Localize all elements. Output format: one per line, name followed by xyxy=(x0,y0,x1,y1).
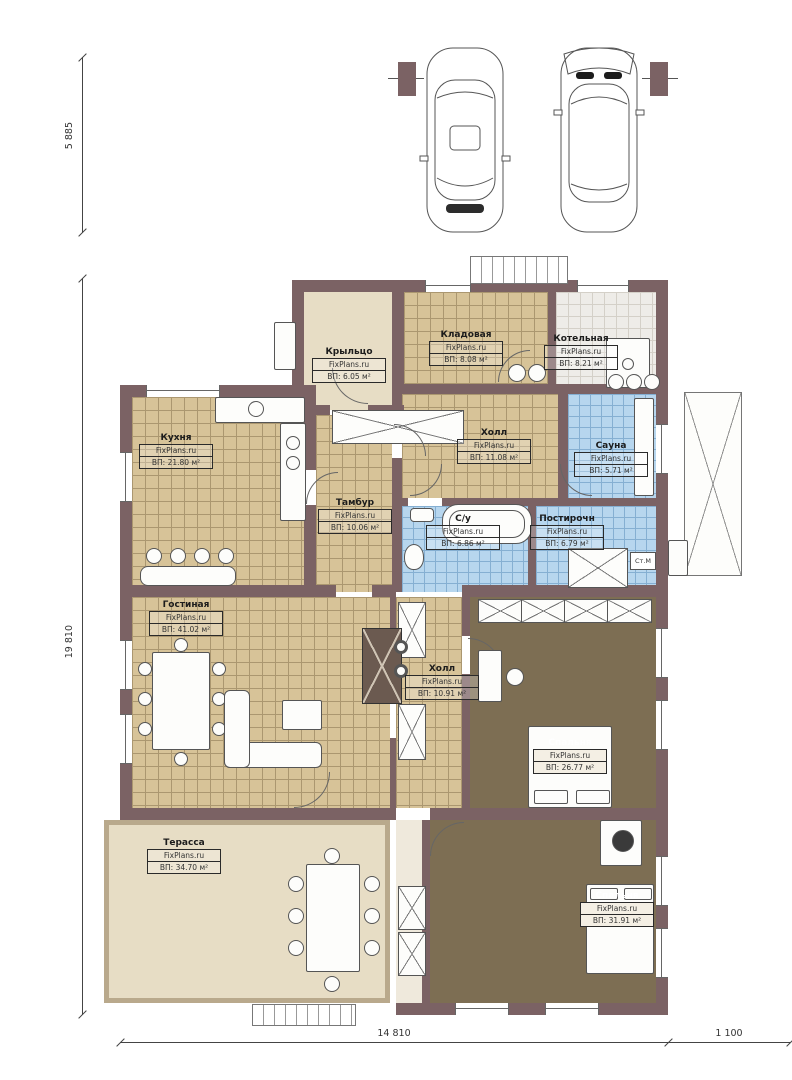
pillow xyxy=(576,790,610,804)
room-area: ВП: 21.80 м² xyxy=(140,457,212,468)
window xyxy=(146,385,220,397)
room-area: ВП: 31.91 м² xyxy=(581,915,653,926)
room-label-hall-mid: Холл FixPlans.ru ВП: 10.91 м² xyxy=(405,664,479,700)
boiler-equipment xyxy=(644,374,660,390)
room-area: ВП: 8.08 м² xyxy=(430,354,502,365)
wall xyxy=(392,458,402,592)
dining-table xyxy=(152,652,210,750)
window xyxy=(120,640,132,690)
dimension-line-main-width xyxy=(120,1042,668,1043)
room-area: ВП: 6.79 м² xyxy=(531,538,603,549)
wall xyxy=(430,808,668,820)
watermark: FixPlans.ru xyxy=(458,440,530,452)
window xyxy=(120,714,132,764)
watermark: FixPlans.ru xyxy=(581,903,653,915)
room-info-box: FixPlans.ru ВП: 6.05 м² xyxy=(312,358,386,383)
room-area: ВП: 10.06 м² xyxy=(319,522,391,533)
room-label-boiler: Котельная FixPlans.ru ВП: 8.21 м² xyxy=(544,334,618,370)
dimension-line-garage-height xyxy=(82,57,83,233)
chair xyxy=(170,548,186,564)
sofa xyxy=(224,690,250,768)
watermark: FixPlans.ru xyxy=(575,453,647,465)
watermark: FixPlans.ru xyxy=(430,342,502,354)
coffee-table xyxy=(282,700,322,730)
chair xyxy=(138,692,152,706)
room-label-bathroom: С/у FixPlans.ru ВП: 6.86 м² xyxy=(426,514,500,550)
stove-burner xyxy=(286,456,300,470)
room-name: Холл xyxy=(405,664,479,674)
window xyxy=(455,1003,509,1015)
chair xyxy=(288,876,304,892)
room-name: Кладовая xyxy=(429,330,503,340)
room-label-terrace: Терасса FixPlans.ru ВП: 34.70 м² xyxy=(147,838,221,874)
room-name: Крыльцо xyxy=(312,347,386,357)
chair xyxy=(138,722,152,736)
room-label-sauna: Сауна FixPlans.ru ВП: 5.71 м² xyxy=(574,441,648,477)
dimension-line-right-width xyxy=(668,1042,790,1043)
exterior-annex xyxy=(684,392,742,576)
chair xyxy=(288,908,304,924)
room-label-bedroom-1: Спальня FixPlans.ru ВП: 26.77 м² xyxy=(533,738,607,774)
room-info-box: FixPlans.ru ВП: 8.08 м² xyxy=(429,341,503,366)
washing-machine-label: Ст.М xyxy=(630,552,656,570)
wall xyxy=(120,808,396,820)
room-label-kitchen: Кухня FixPlans.ru ВП: 21.80 м² xyxy=(139,433,213,469)
room-name: Тамбур xyxy=(318,498,392,508)
window xyxy=(577,280,629,292)
wall xyxy=(120,585,336,597)
pillow xyxy=(534,790,568,804)
room-label-laundry: Постирочн FixPlans.ru ВП: 6.79 м² xyxy=(530,514,604,550)
room-info-box: FixPlans.ru ВП: 11.08 м² xyxy=(457,439,531,464)
watermark: FixPlans.ru xyxy=(545,346,617,358)
wardrobe-cell xyxy=(521,599,566,623)
room-name: Спальня xyxy=(533,738,607,748)
chair xyxy=(288,940,304,956)
room-name: Гостиная xyxy=(149,600,223,610)
kitchen-table xyxy=(140,566,236,586)
room-name: Спальня xyxy=(580,891,654,901)
wall xyxy=(528,498,668,506)
room-label-porch: Крыльцо FixPlans.ru ВП: 6.05 м² xyxy=(312,347,386,383)
room-label-vestibule: Тамбур FixPlans.ru ВП: 10.06 м² xyxy=(318,498,392,534)
room-area: ВП: 6.05 м² xyxy=(313,371,385,382)
room-label-bedroom-2: Спальня FixPlans.ru ВП: 31.91 м² xyxy=(580,891,654,927)
boiler-dial xyxy=(622,358,634,370)
column xyxy=(394,640,408,654)
wall xyxy=(372,585,396,597)
room-info-box: FixPlans.ru ВП: 5.71 м² xyxy=(574,452,648,477)
window xyxy=(656,928,668,978)
closet xyxy=(398,704,426,760)
desk xyxy=(478,650,502,702)
wall xyxy=(390,738,396,808)
chair xyxy=(364,908,380,924)
dimension-label-garage-height: 5 885 xyxy=(64,122,75,149)
room-info-box: FixPlans.ru ВП: 26.77 м² xyxy=(533,749,607,774)
wardrobe-cell xyxy=(478,599,523,623)
room-label-living: Гостиная FixPlans.ru ВП: 41.02 м² xyxy=(149,600,223,636)
chair xyxy=(194,548,210,564)
floor-plan-canvas: 5 885 19 810 14 810 1 100 xyxy=(0,0,792,1080)
window xyxy=(656,424,668,474)
room-area: ВП: 8.21 м² xyxy=(545,358,617,369)
room-info-box: FixPlans.ru ВП: 6.86 м² xyxy=(426,525,500,550)
room-area: ВП: 10.91 м² xyxy=(406,688,478,699)
wardrobe-cell xyxy=(607,599,652,623)
chair xyxy=(174,638,188,652)
room-name: Котельная xyxy=(544,334,618,344)
watermark: FixPlans.ru xyxy=(150,612,222,624)
toilet xyxy=(404,544,424,570)
porch-pilaster xyxy=(274,322,296,370)
room-info-box: FixPlans.ru ВП: 8.21 м² xyxy=(544,345,618,370)
chair xyxy=(324,848,340,864)
watermark: FixPlans.ru xyxy=(140,445,212,457)
room-name: Холл xyxy=(457,428,531,438)
entrance-canopy-steps xyxy=(470,256,568,284)
room-label-hall-top: Холл FixPlans.ru ВП: 11.08 м² xyxy=(457,428,531,464)
washing-machine-box xyxy=(568,548,628,588)
car-top-view-icon-right xyxy=(552,44,646,236)
dimension-label-right-width: 1 100 xyxy=(668,1028,790,1039)
terrace-table xyxy=(306,864,360,972)
room-info-box: FixPlans.ru ВП: 31.91 м² xyxy=(580,902,654,927)
room-area: ВП: 41.02 м² xyxy=(150,624,222,635)
window xyxy=(656,700,668,750)
dimension-label-main-width: 14 810 xyxy=(120,1028,668,1039)
wall xyxy=(396,1003,668,1015)
watermark: FixPlans.ru xyxy=(531,526,603,538)
chair xyxy=(364,940,380,956)
room-info-box: FixPlans.ru ВП: 10.06 м² xyxy=(318,509,392,534)
closet xyxy=(398,932,426,976)
car-top-view-icon-left xyxy=(418,44,512,236)
parking-pillar-right xyxy=(650,62,668,96)
boiler-equipment xyxy=(608,374,624,390)
room-name: С/у xyxy=(426,514,500,524)
window xyxy=(120,452,132,502)
chair xyxy=(612,830,634,852)
chair xyxy=(146,548,162,564)
room-info-box: FixPlans.ru ВП: 41.02 м² xyxy=(149,611,223,636)
chair xyxy=(364,876,380,892)
watermark: FixPlans.ru xyxy=(534,750,606,762)
room-name: Кухня xyxy=(139,433,213,443)
room-area: ВП: 5.71 м² xyxy=(575,465,647,476)
room-area: ВП: 11.08 м² xyxy=(458,452,530,463)
room-label-storage: Кладовая FixPlans.ru ВП: 8.08 м² xyxy=(429,330,503,366)
wall xyxy=(392,280,404,392)
chair xyxy=(324,976,340,992)
exterior-unit xyxy=(668,540,688,576)
room-area: ВП: 6.86 м² xyxy=(427,538,499,549)
room-name: Терасса xyxy=(147,838,221,848)
terrace-steps xyxy=(252,1004,356,1026)
window xyxy=(656,856,668,906)
storage-equipment xyxy=(508,364,526,382)
window xyxy=(425,280,471,292)
dimension-label-main-height: 19 810 xyxy=(64,625,75,658)
watermark: FixPlans.ru xyxy=(406,676,478,688)
room-name: Постирочн xyxy=(530,514,604,524)
room-info-box: FixPlans.ru ВП: 34.70 м² xyxy=(147,849,221,874)
closet xyxy=(398,886,426,930)
dimension-line-main-height xyxy=(82,278,83,1015)
chair xyxy=(138,662,152,676)
boiler-equipment xyxy=(626,374,642,390)
stove-burner xyxy=(286,436,300,450)
room-area: ВП: 26.77 м² xyxy=(534,762,606,773)
room-info-box: FixPlans.ru ВП: 6.79 м² xyxy=(530,525,604,550)
chair xyxy=(212,662,226,676)
wall xyxy=(462,597,470,636)
watermark: FixPlans.ru xyxy=(319,510,391,522)
desk-chair xyxy=(506,668,524,686)
chair xyxy=(218,548,234,564)
wardrobe-cell xyxy=(564,599,609,623)
room-info-box: FixPlans.ru ВП: 21.80 м² xyxy=(139,444,213,469)
kitchen-sink xyxy=(248,401,264,417)
window xyxy=(656,628,668,678)
watermark: FixPlans.ru xyxy=(427,526,499,538)
room-info-box: FixPlans.ru ВП: 10.91 м² xyxy=(405,675,479,700)
watermark: FixPlans.ru xyxy=(148,850,220,862)
wall xyxy=(402,498,408,506)
watermark: FixPlans.ru xyxy=(313,359,385,371)
parking-pillar-left xyxy=(398,62,416,96)
room-area: ВП: 34.70 м² xyxy=(148,862,220,873)
window xyxy=(545,1003,599,1015)
wall xyxy=(462,585,668,597)
room-name: Сауна xyxy=(574,441,648,451)
chair xyxy=(174,752,188,766)
